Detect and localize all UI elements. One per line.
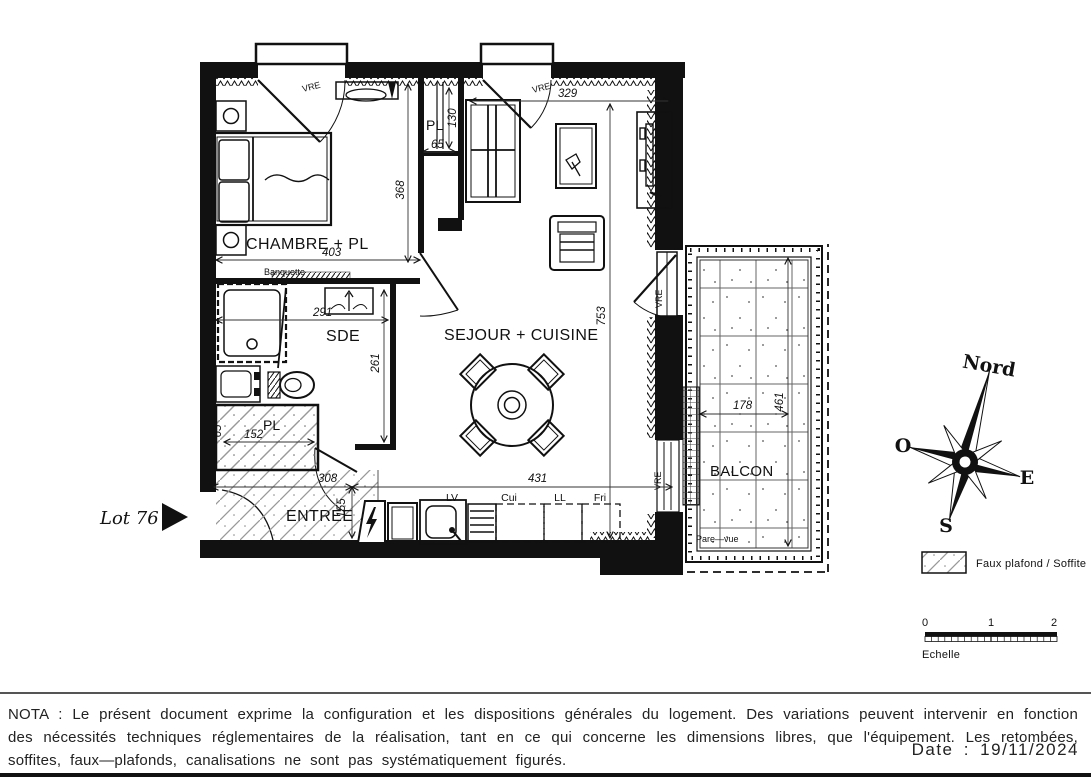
compass-east-label: E xyxy=(1020,467,1034,489)
dim-pl-top-w: 65 xyxy=(431,139,444,151)
vre-label-1: VRE xyxy=(301,80,321,94)
legend-label: Faux plafond / Soffite xyxy=(976,558,1086,570)
date-label: Date : 19/11/2024 xyxy=(912,740,1079,760)
chambre-door-leaf xyxy=(420,253,458,310)
room-label-sejour: SEJOUR + CUISINE xyxy=(444,327,598,344)
compass-rose-icon: Nord O E S xyxy=(894,351,1044,537)
lot-label: Lot 76 xyxy=(99,508,159,529)
dim-chambre-width: 403 xyxy=(322,247,342,259)
compass-south-label: S xyxy=(939,515,953,537)
dishwasher xyxy=(468,504,496,542)
scale-label: Echelle xyxy=(922,649,960,661)
dim-balcon-height: 461 xyxy=(774,392,786,411)
lot-arrow-icon xyxy=(162,503,188,531)
window-box-sejour xyxy=(481,44,553,64)
floor-plan-drawing: BALCON Pare—vue 178 461 xyxy=(0,0,1091,692)
faux-plafond-swatch xyxy=(922,552,966,573)
towel-radiator xyxy=(325,288,373,314)
nightstand-bottom xyxy=(216,225,246,255)
bed xyxy=(213,133,331,225)
kitchen-label-cui: Cui xyxy=(501,492,517,504)
room-label-sde: SDE xyxy=(326,328,360,345)
kitchen-label-ll: LL xyxy=(554,492,566,504)
dim-entree-width: 308 xyxy=(318,473,338,485)
balcony-trellis xyxy=(683,387,699,505)
sde-door-leaf xyxy=(278,288,286,368)
nightstand-top xyxy=(216,101,246,131)
shelf-unit xyxy=(466,100,520,202)
sejour-door-leaf xyxy=(315,448,357,472)
banquette-label: Banquette xyxy=(264,267,305,277)
dim-sejour-height: 753 xyxy=(596,306,608,326)
kitchen-sink xyxy=(420,500,466,544)
dim-pl-entree-w: 152 xyxy=(244,429,264,441)
coffee-table xyxy=(556,124,596,188)
armchair xyxy=(550,216,604,270)
entry-cabinet xyxy=(388,503,417,543)
dim-sejour-top: 329 xyxy=(558,88,578,100)
balcony-tiles xyxy=(700,260,808,548)
scale-tick-0: 0 xyxy=(922,617,928,629)
dim-balcon-width: 178 xyxy=(733,400,753,412)
room-label-balcon: BALCON xyxy=(710,463,774,480)
vre-label-2: VRE xyxy=(531,81,551,95)
nota-text: NOTA : Le présent document exprime la co… xyxy=(8,703,1078,772)
compass-north-label: Nord xyxy=(961,351,1017,382)
scale-tick-2: 2 xyxy=(1051,617,1057,629)
compass-west-label: O xyxy=(895,435,912,457)
washbasin xyxy=(216,366,260,402)
placard-entree xyxy=(216,405,318,470)
shower xyxy=(218,284,286,362)
floor-plan-sheet: BALCON Pare—vue 178 461 xyxy=(0,0,1091,782)
vre-label-3: VRE xyxy=(654,289,664,308)
footer-separator xyxy=(0,692,1091,694)
dim-pl-entree-h: 65 xyxy=(212,424,224,437)
room-label-pl-entree: PL xyxy=(263,417,280,433)
dining-table xyxy=(460,354,563,455)
legend: Faux plafond / Soffite xyxy=(922,552,1086,573)
toilet xyxy=(268,372,314,398)
dim-entree-height: 155 xyxy=(336,498,348,518)
footer-bottom-rule xyxy=(0,773,1091,777)
scale-bar: 0 1 2 Echelle xyxy=(922,617,1057,661)
dim-cuisine-width: 431 xyxy=(528,473,547,485)
dim-pl-top-h: 130 xyxy=(447,108,459,128)
room-label-pl-top: PL xyxy=(426,117,443,133)
lot-marker: Lot 76 xyxy=(99,503,188,531)
footer: NOTA : Le présent document exprime la co… xyxy=(0,692,1091,772)
kitchen-label-lv: LV xyxy=(446,492,458,504)
window-box-chambre xyxy=(256,44,347,64)
facade-windows xyxy=(256,44,553,142)
dim-chambre-height: 368 xyxy=(395,180,407,200)
dim-sde-height: 261 xyxy=(370,353,382,373)
scale-tick-1: 1 xyxy=(988,617,994,629)
dim-sde-width: 291 xyxy=(312,307,332,319)
pare-vue-label: Pare—vue xyxy=(696,534,739,544)
room-label-chambre: CHAMBRE + PL xyxy=(246,236,369,253)
kitchen-label-fri: Fri xyxy=(594,492,606,504)
window-leaf-sejour xyxy=(483,80,531,128)
